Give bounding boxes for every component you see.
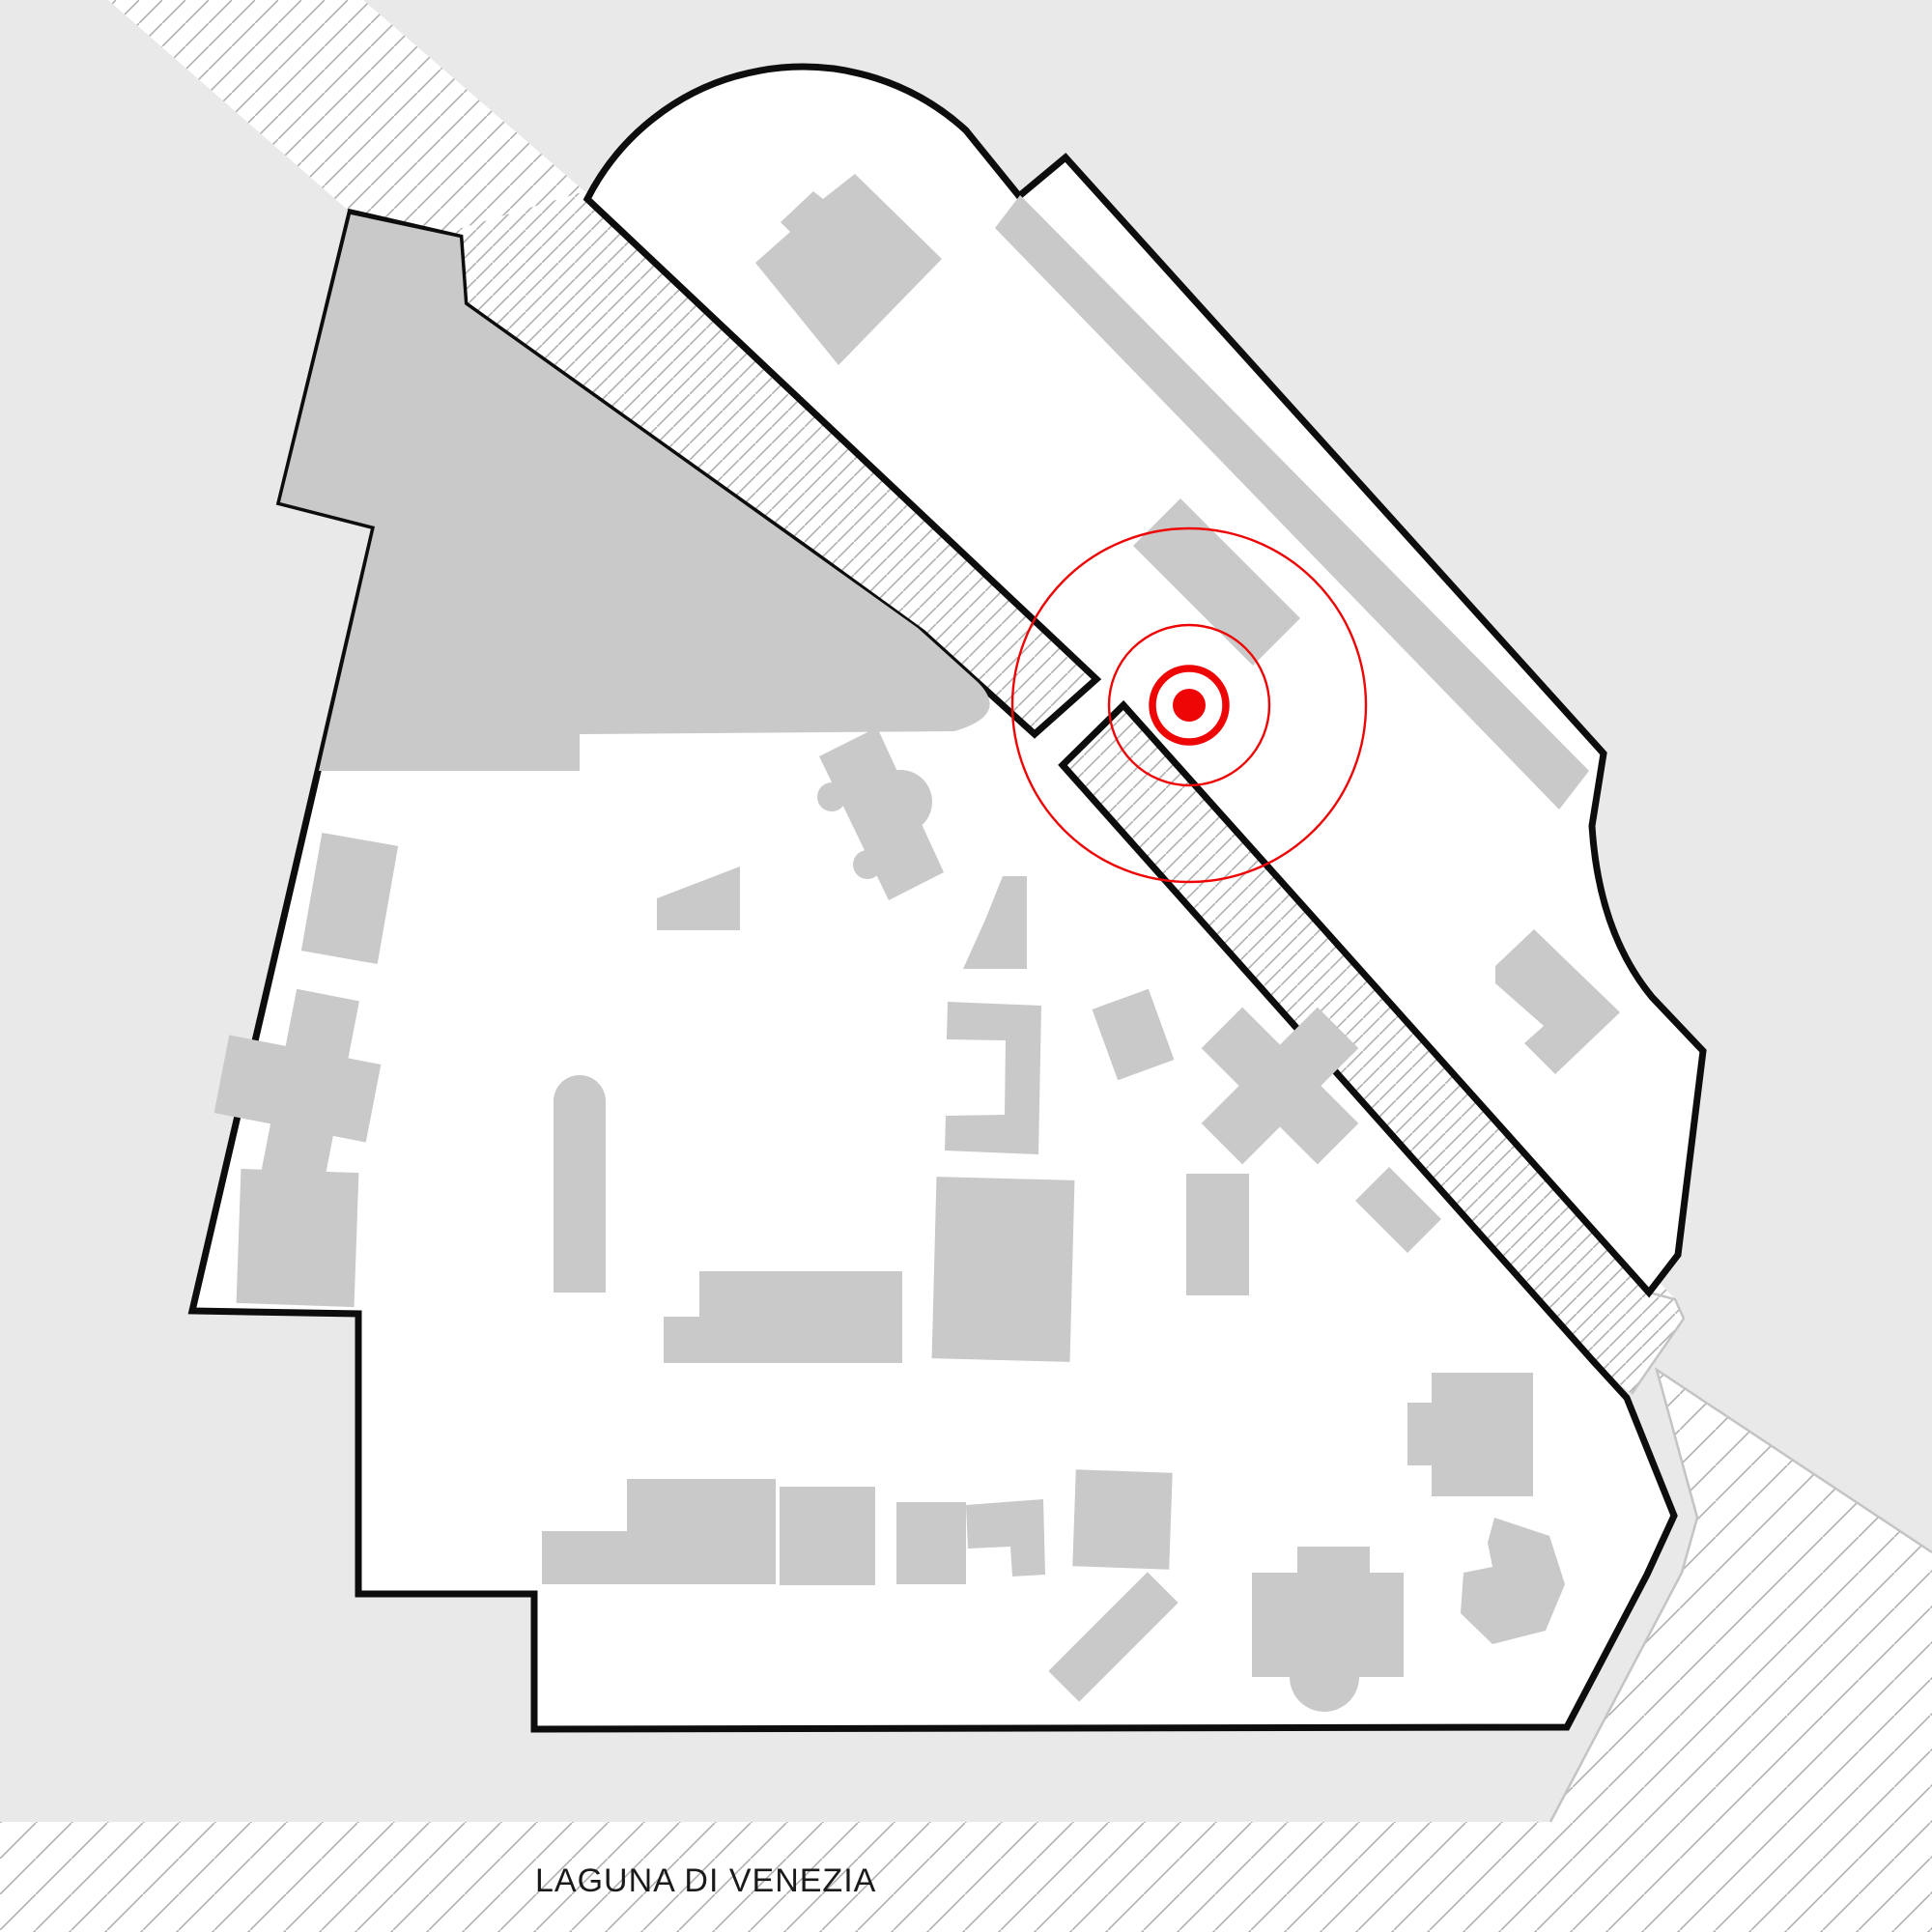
building-keyhole-turret bbox=[817, 782, 846, 811]
building bbox=[237, 1169, 359, 1307]
site-plan: LAGUNA DI VENEZIA bbox=[0, 0, 1932, 1932]
building-keyhole-dome bbox=[868, 770, 932, 834]
building-keyhole-turret bbox=[853, 850, 882, 879]
building bbox=[896, 1502, 966, 1584]
building bbox=[664, 1271, 902, 1363]
building bbox=[932, 1177, 1075, 1362]
lagoon-label: LAGUNA DI VENEZIA bbox=[535, 1862, 876, 1899]
building-apse bbox=[1290, 1642, 1359, 1712]
building bbox=[1072, 1469, 1172, 1569]
marker-dot bbox=[1173, 689, 1206, 722]
building bbox=[1186, 1174, 1249, 1295]
building bbox=[542, 1531, 631, 1584]
building bbox=[780, 1487, 875, 1585]
building bbox=[627, 1479, 776, 1584]
building-arched bbox=[554, 1075, 606, 1293]
venice-site-map: LAGUNA DI VENEZIA bbox=[0, 0, 1932, 1932]
